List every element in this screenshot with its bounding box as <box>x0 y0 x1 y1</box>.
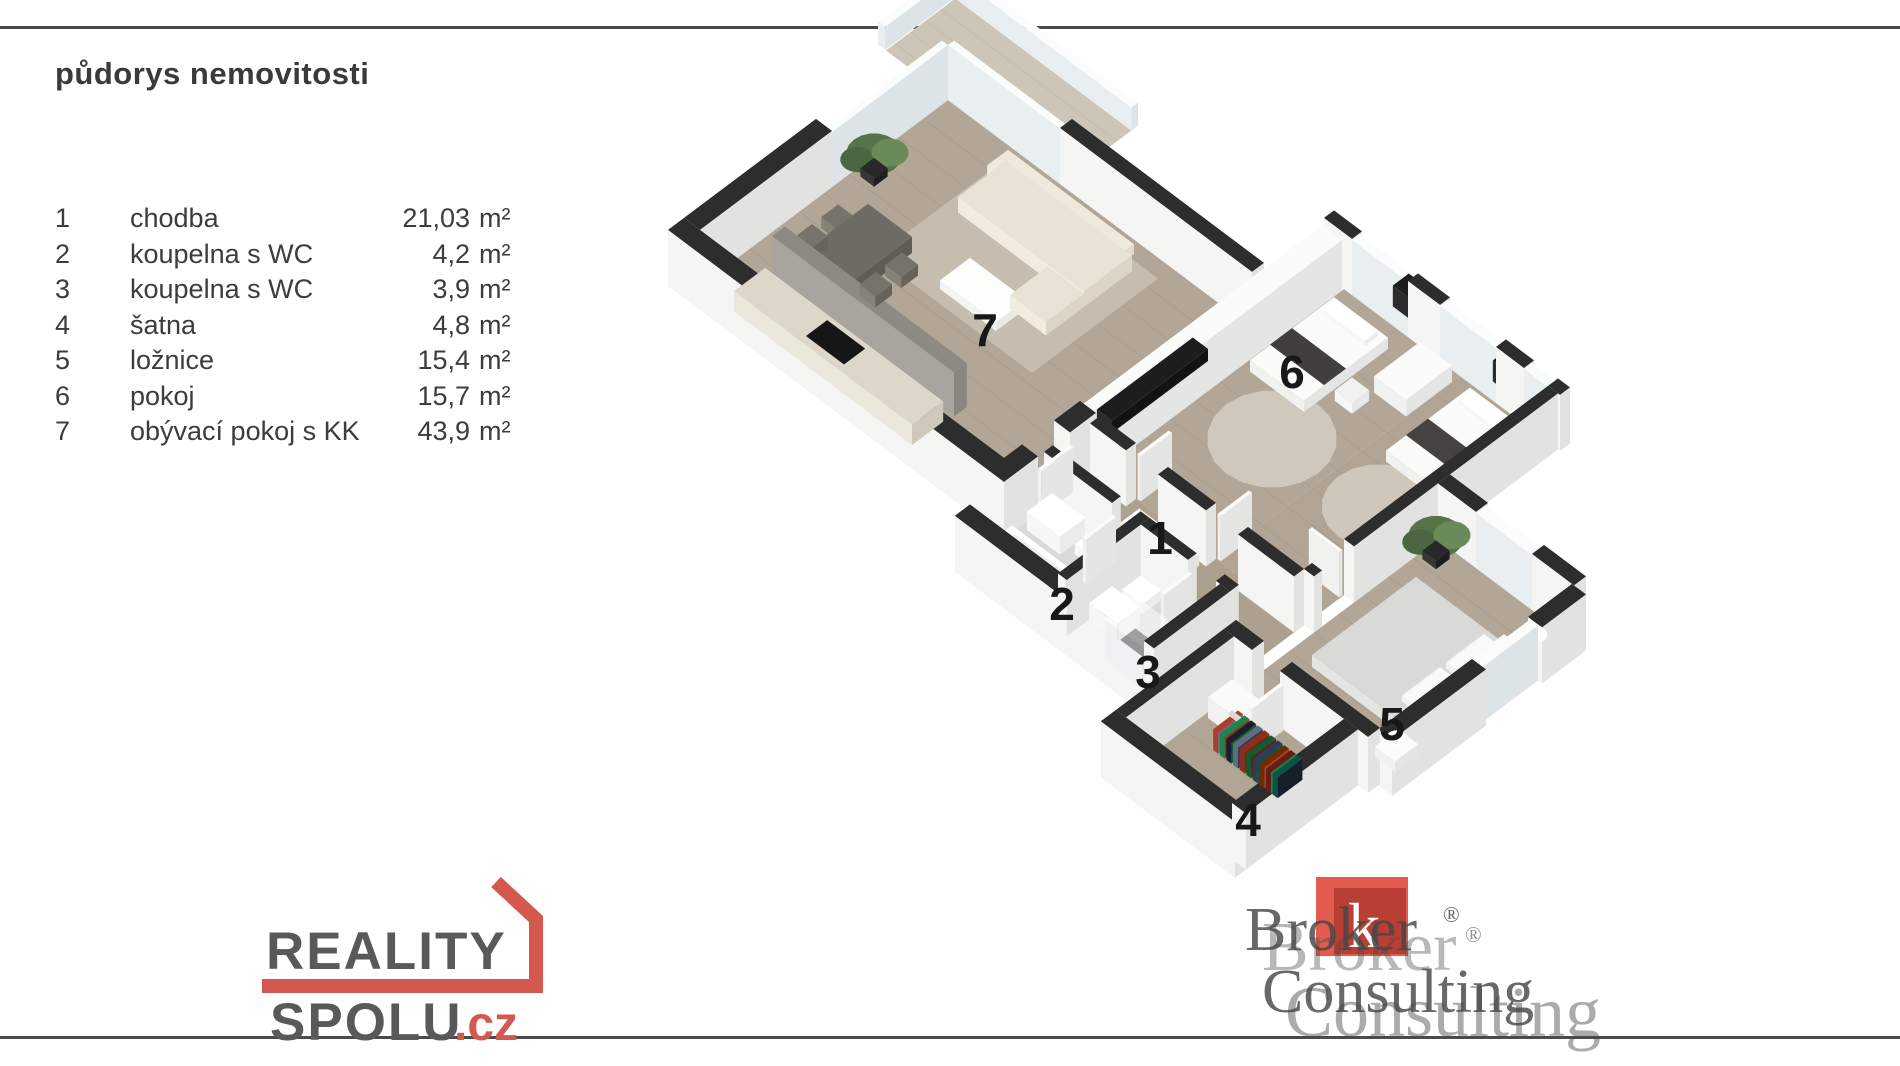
legend-room-name: koupelna s WC <box>130 274 370 305</box>
reality-logo-word: REALITY <box>266 922 507 981</box>
broker-consulting-watermark: k Broker Broker ® ® Consulting Consultin… <box>1150 850 1850 1061</box>
legend-row: 5ložnice15,4m² <box>55 345 510 381</box>
legend-room-name: pokoj <box>130 381 370 412</box>
legend-room-area: 43,9 <box>370 416 470 447</box>
legend-room-area: 3,9 <box>370 274 470 305</box>
floor-plan-page: { "page": { "title": "půdorys nemovitost… <box>0 0 1900 1061</box>
legend-area-unit: m² <box>479 345 510 376</box>
page-title: půdorys nemovitosti <box>55 56 369 92</box>
legend-row: 4šatna4,8m² <box>55 310 510 346</box>
legend-room-number: 6 <box>55 381 130 412</box>
legend-area-unit: m² <box>479 203 510 234</box>
legend-room-name: chodba <box>130 203 370 234</box>
legend-room-area: 21,03 <box>370 203 470 234</box>
spolu-logo-word: SPOLU <box>270 993 463 1052</box>
consulting-word: Consulting <box>1262 958 1534 1026</box>
spolu-logo-tld: .cz <box>454 998 518 1051</box>
legend-area-unit: m² <box>479 239 510 270</box>
broker-registered-mark-ghost: ® <box>1465 922 1482 947</box>
legend-room-number: 7 <box>55 416 130 447</box>
legend-row: 1chodba21,03m² <box>55 203 510 239</box>
legend-room-area: 4,2 <box>370 239 470 270</box>
legend-room-area: 4,8 <box>370 310 470 341</box>
legend-room-name: ložnice <box>130 345 370 376</box>
legend-room-number: 4 <box>55 310 130 341</box>
legend-row: 2koupelna s WC4,2m² <box>55 239 510 275</box>
legend-row: 7obývací pokoj s KK43,9m² <box>55 416 510 452</box>
legend-room-number: 2 <box>55 239 130 270</box>
legend-room-area: 15,7 <box>370 381 470 412</box>
legend-area-unit: m² <box>479 416 510 447</box>
reality-spolu-logo: REALITY SPOLU .cz <box>250 855 610 1055</box>
legend-row: 3koupelna s WC3,9m² <box>55 274 510 310</box>
legend-room-number: 1 <box>55 203 130 234</box>
legend-area-unit: m² <box>479 274 510 305</box>
legend-area-unit: m² <box>479 310 510 341</box>
legend-room-name: koupelna s WC <box>130 239 370 270</box>
legend-row: 6pokoj15,7m² <box>55 381 510 417</box>
broker-word: Broker <box>1245 896 1418 964</box>
legend-rows: 1chodba21,03m²2koupelna s WC4,2m²3koupel… <box>55 203 510 452</box>
legend-room-name: šatna <box>130 310 370 341</box>
legend-room-number: 5 <box>55 345 130 376</box>
legend-room-area: 15,4 <box>370 345 470 376</box>
legend-area-unit: m² <box>479 381 510 412</box>
legend-room-name: obývací pokoj s KK <box>130 416 370 447</box>
legend-room-number: 3 <box>55 274 130 305</box>
broker-registered-mark: ® <box>1443 902 1460 927</box>
room-legend: 1chodba21,03m²2koupelna s WC4,2m²3koupel… <box>55 203 510 452</box>
